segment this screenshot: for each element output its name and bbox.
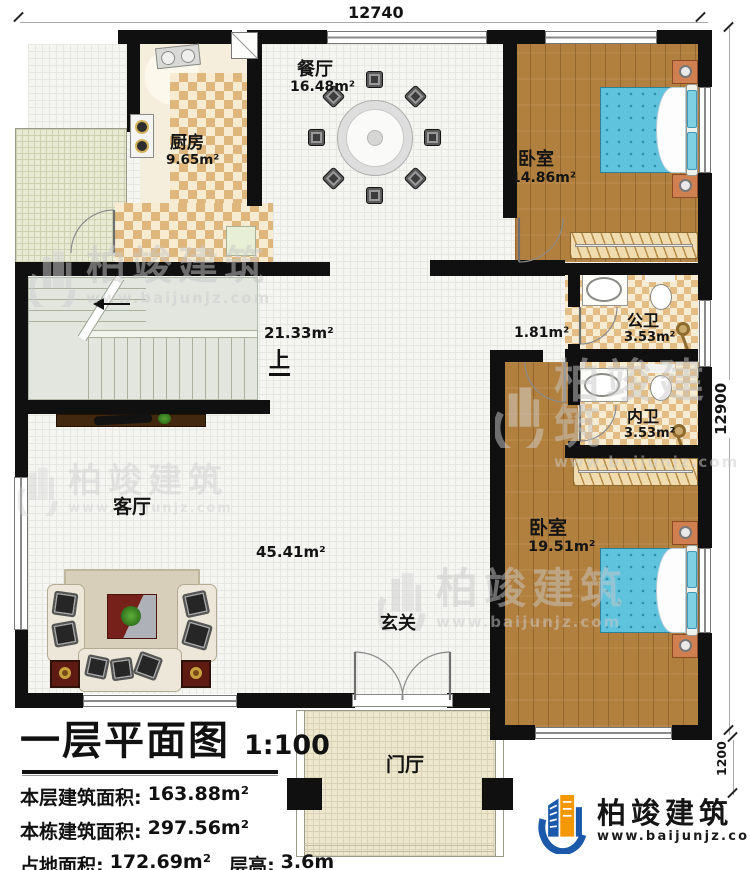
room-label-bedroom-bottom: 卧室 (529, 518, 567, 539)
stat-value: 163.88m² (148, 783, 249, 810)
room-area-dining: 16.48m² (290, 80, 355, 95)
dimension-porch: 1200 (714, 738, 729, 779)
stat-floor-area: 本层建筑面积: 163.88m² (20, 783, 334, 810)
stat-label: 本栋建筑面积: (20, 817, 142, 844)
corridor-area-label: 1.81m² (514, 326, 569, 341)
room-area-living: 45.41m² (256, 544, 326, 561)
title-rule (22, 770, 278, 774)
stat-label: 层高: (229, 851, 275, 870)
dimension-right: 12900 (712, 380, 730, 438)
door-arc (71, 210, 114, 253)
door-arc (355, 652, 403, 700)
dimension-line-porch (733, 740, 734, 795)
stat-building-area: 本栋建筑面积: 297.56m² (20, 817, 334, 844)
hall-area-label: 21.33m² (264, 325, 334, 342)
stat-value: 172.69m² (110, 851, 211, 870)
door-arc (525, 362, 565, 402)
dimension-top: 12740 (345, 3, 407, 22)
dimension-line-top (20, 22, 708, 23)
stat-value: 3.6m (281, 851, 334, 870)
room-area-bath-private: 3.53m² (624, 427, 675, 441)
plan-scale: 1:100 (244, 730, 330, 761)
company-logo-text: 柏竣建筑 www.baijunjz.com (597, 798, 750, 843)
stat-label: 本层建筑面积: (20, 783, 142, 810)
stairs-up-label: 上 (269, 349, 290, 376)
stat-value: 297.56m² (148, 817, 249, 844)
room-label-kitchen: 厨房 (170, 134, 204, 153)
stat-land-area: 占地面积: 172.69m² 层高: 3.6m (20, 851, 334, 870)
stat-label: 占地面积: (20, 851, 104, 870)
room-label-bath-public: 公卫 (627, 312, 659, 330)
foyer-label: 玄关 (380, 614, 416, 634)
door-arc (402, 652, 450, 700)
room-area-bedroom-top: 14.86m² (511, 171, 576, 186)
room-label-bath-private: 内卫 (627, 408, 659, 426)
company-logo-icon (536, 788, 588, 854)
room-label-dining: 餐厅 (297, 60, 333, 80)
plan-title-row: 一层平面图 1:100 (20, 708, 334, 766)
door-arc (580, 405, 616, 441)
room-label-bedroom-top: 卧室 (518, 150, 554, 170)
room-area-kitchen: 9.65m² (166, 153, 219, 168)
room-label-living: 客厅 (113, 497, 151, 518)
door-arc (580, 307, 617, 344)
title-block: 一层平面图 1:100 本层建筑面积: 163.88m² 本栋建筑面积: 297… (20, 708, 334, 870)
door-arc (519, 218, 563, 262)
porch-label: 门厅 (386, 755, 424, 776)
company-logo: 柏竣建筑 www.baijunjz.com (536, 788, 750, 854)
title-rule-thin (22, 775, 278, 776)
room-area-bedroom-bottom: 19.51m² (528, 540, 595, 556)
company-name: 柏竣建筑 (597, 798, 750, 828)
company-website: www.baijunjz.com (597, 829, 750, 844)
room-area-bath-public: 3.53m² (624, 331, 675, 345)
floor-plan: 厨房 9.65m² 餐厅 16.48m² 卧室 14.86m² 公卫 3.53m… (0, 0, 750, 870)
plan-title: 一层平面图 (20, 708, 230, 766)
